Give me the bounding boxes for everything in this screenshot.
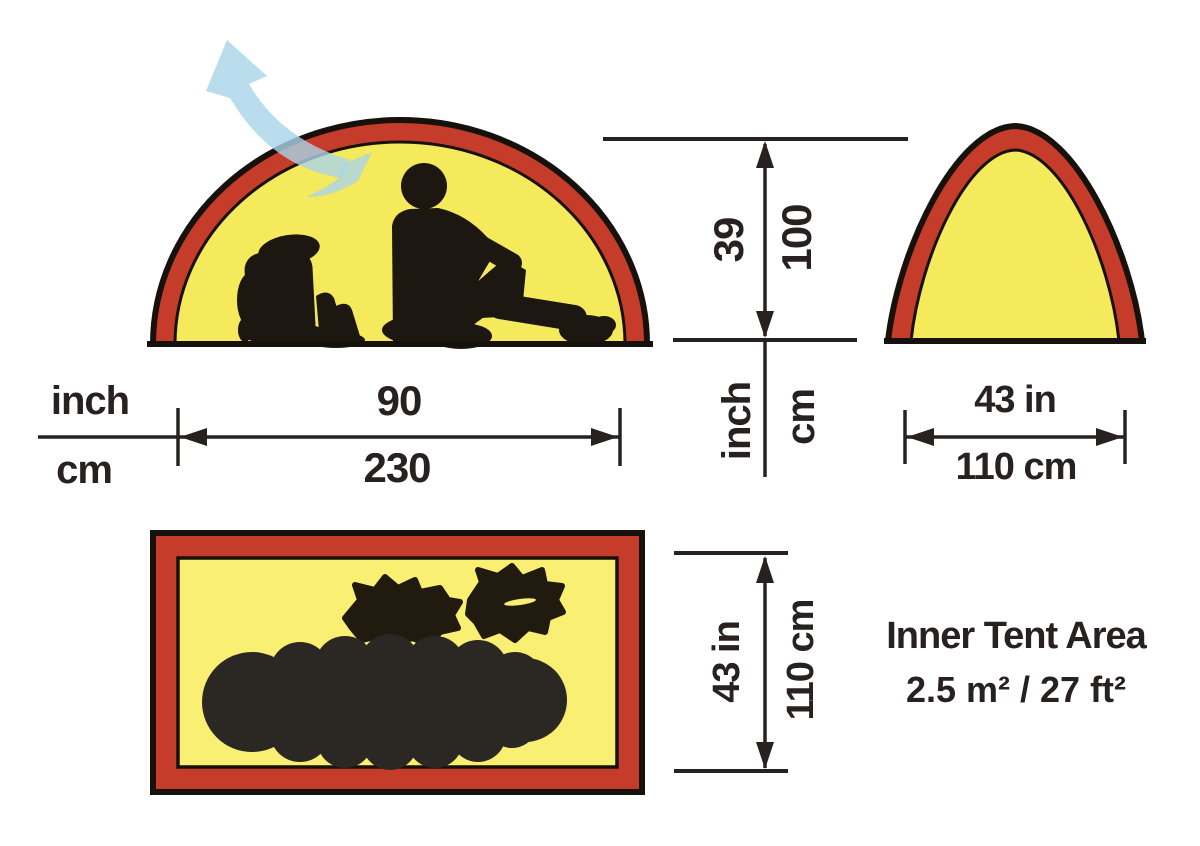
height-inch-unit: inch [717,382,757,460]
floor-plan [153,533,642,792]
arrowhead-right-icon [1096,428,1123,446]
front-width-inch-value: 43 in [974,381,1056,419]
front-view-tent [884,126,1146,341]
arrowhead-left-icon [180,428,207,446]
width-cm-value: 230 [363,447,430,489]
side-view-tent [147,40,653,349]
arrowhead-up-icon [756,556,774,583]
arrowhead-right-icon [591,428,618,446]
arrowhead-up-icon [756,141,774,168]
front-width-cm-value: 110 cm [956,448,1077,486]
scale-inch-label: inch [51,381,129,421]
arrowhead-left-icon [907,428,934,446]
inner-area-value: 2.5 m² / 27 ft² [906,672,1126,708]
tent-dimension-diagram: inch cm 90 230 39 100 inch cm 43 in 110 … [0,0,1200,846]
width-inch-value: 90 [377,380,422,422]
inner-area-title: Inner Tent Area [886,617,1146,655]
scale-cm-label: cm [56,450,112,490]
height-cm-value: 100 [776,204,818,271]
front-tent-inner [911,150,1119,341]
diagram-canvas [0,0,1200,846]
depth-inch-value: 43 in [708,621,746,703]
arrowhead-down-icon [756,311,774,338]
arrowhead-down-icon [756,742,774,769]
height-inch-value: 39 [708,218,750,263]
height-cm-unit: cm [781,389,821,445]
depth-cm-value: 110 cm [782,600,820,721]
